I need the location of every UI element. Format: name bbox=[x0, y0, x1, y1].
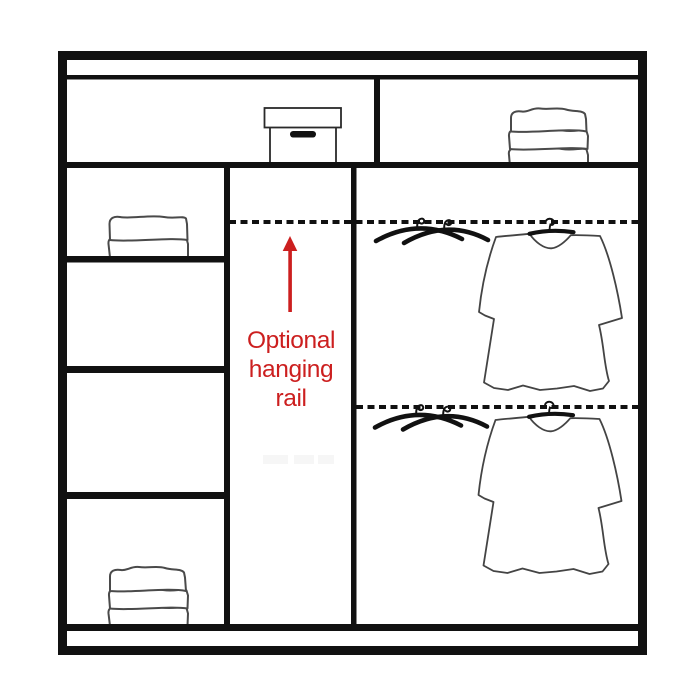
svg-text:rail: rail bbox=[275, 385, 306, 412]
svg-text:hanging: hanging bbox=[249, 356, 333, 383]
svg-text:Optional: Optional bbox=[247, 327, 335, 354]
